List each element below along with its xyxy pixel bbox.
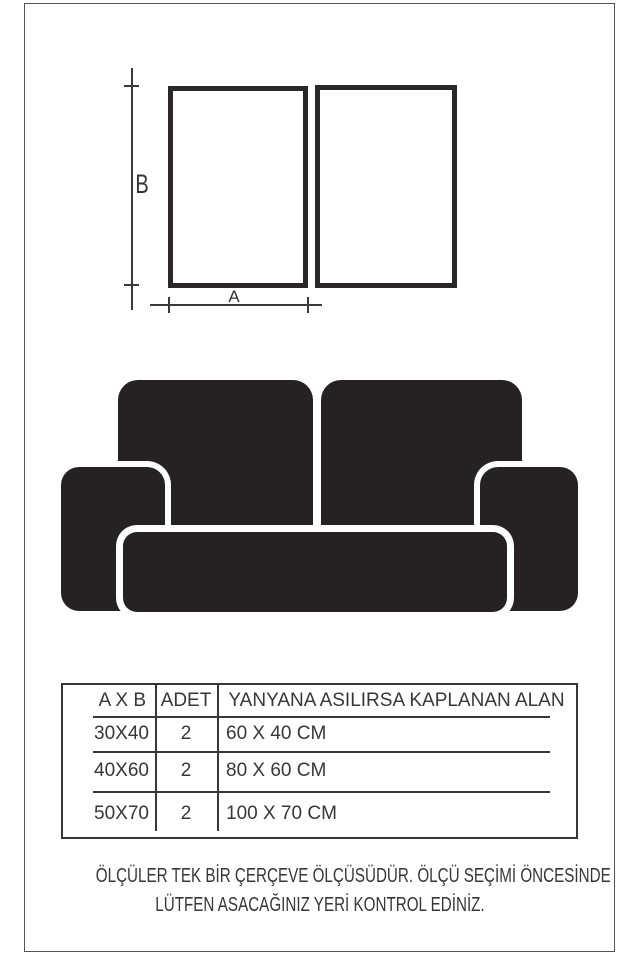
- disclaimer-line-1: ÖLÇÜLER TEK BİR ÇERÇEVE ÖLÇÜSÜDÜR. ÖLÇÜ …: [96, 862, 544, 891]
- table-header-qty: ADET: [155, 685, 217, 716]
- disclaimer-line-2: LÜTFEN ASACAĞINIZ YERİ KONTROL EDİNİZ.: [96, 891, 544, 920]
- dimension-label-a: A: [222, 289, 246, 304]
- dimension-tick-b-top: [124, 85, 139, 87]
- table-cell-area: 80 X 60 CM: [217, 751, 576, 791]
- picture-frame-left: [168, 86, 308, 288]
- table-cell-qty: 2: [155, 716, 217, 751]
- size-table: A X B ADET YANYANA ASILIRSA KAPLANAN ALA…: [61, 683, 578, 839]
- table-header-area: YANYANA ASILIRSA KAPLANAN ALAN: [217, 685, 576, 716]
- table-cell-size: 40X60: [63, 751, 155, 791]
- dimension-label-b: B: [130, 166, 154, 204]
- dimension-tick-b-bottom: [124, 284, 139, 286]
- table-cell-qty: 2: [155, 791, 217, 837]
- dimension-tick-a-right: [307, 297, 309, 313]
- table-cell-size: 30X40: [63, 716, 155, 751]
- table-header-size: A X B: [63, 685, 155, 716]
- table-cell-qty: 2: [155, 751, 217, 791]
- sofa-seat-cushion: [123, 532, 507, 612]
- picture-frame-right: [315, 85, 457, 288]
- table-cell-size: 50X70: [63, 791, 155, 837]
- product-size-infographic: B A A X B ADET YANYANA ASILIRSA KAPLANAN…: [0, 0, 640, 960]
- dimension-tick-a-left: [168, 297, 170, 313]
- table-cell-area: 100 X 70 CM: [217, 791, 576, 837]
- disclaimer-caption: ÖLÇÜLER TEK BİR ÇERÇEVE ÖLÇÜSÜDÜR. ÖLÇÜ …: [25, 862, 615, 920]
- table-cell-area: 60 X 40 CM: [217, 716, 576, 751]
